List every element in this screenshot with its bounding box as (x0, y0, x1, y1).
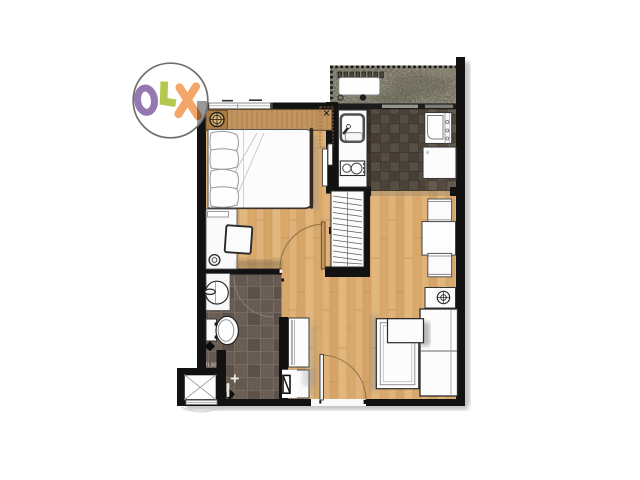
svg-text:0.30: 0.30 (206, 363, 217, 369)
